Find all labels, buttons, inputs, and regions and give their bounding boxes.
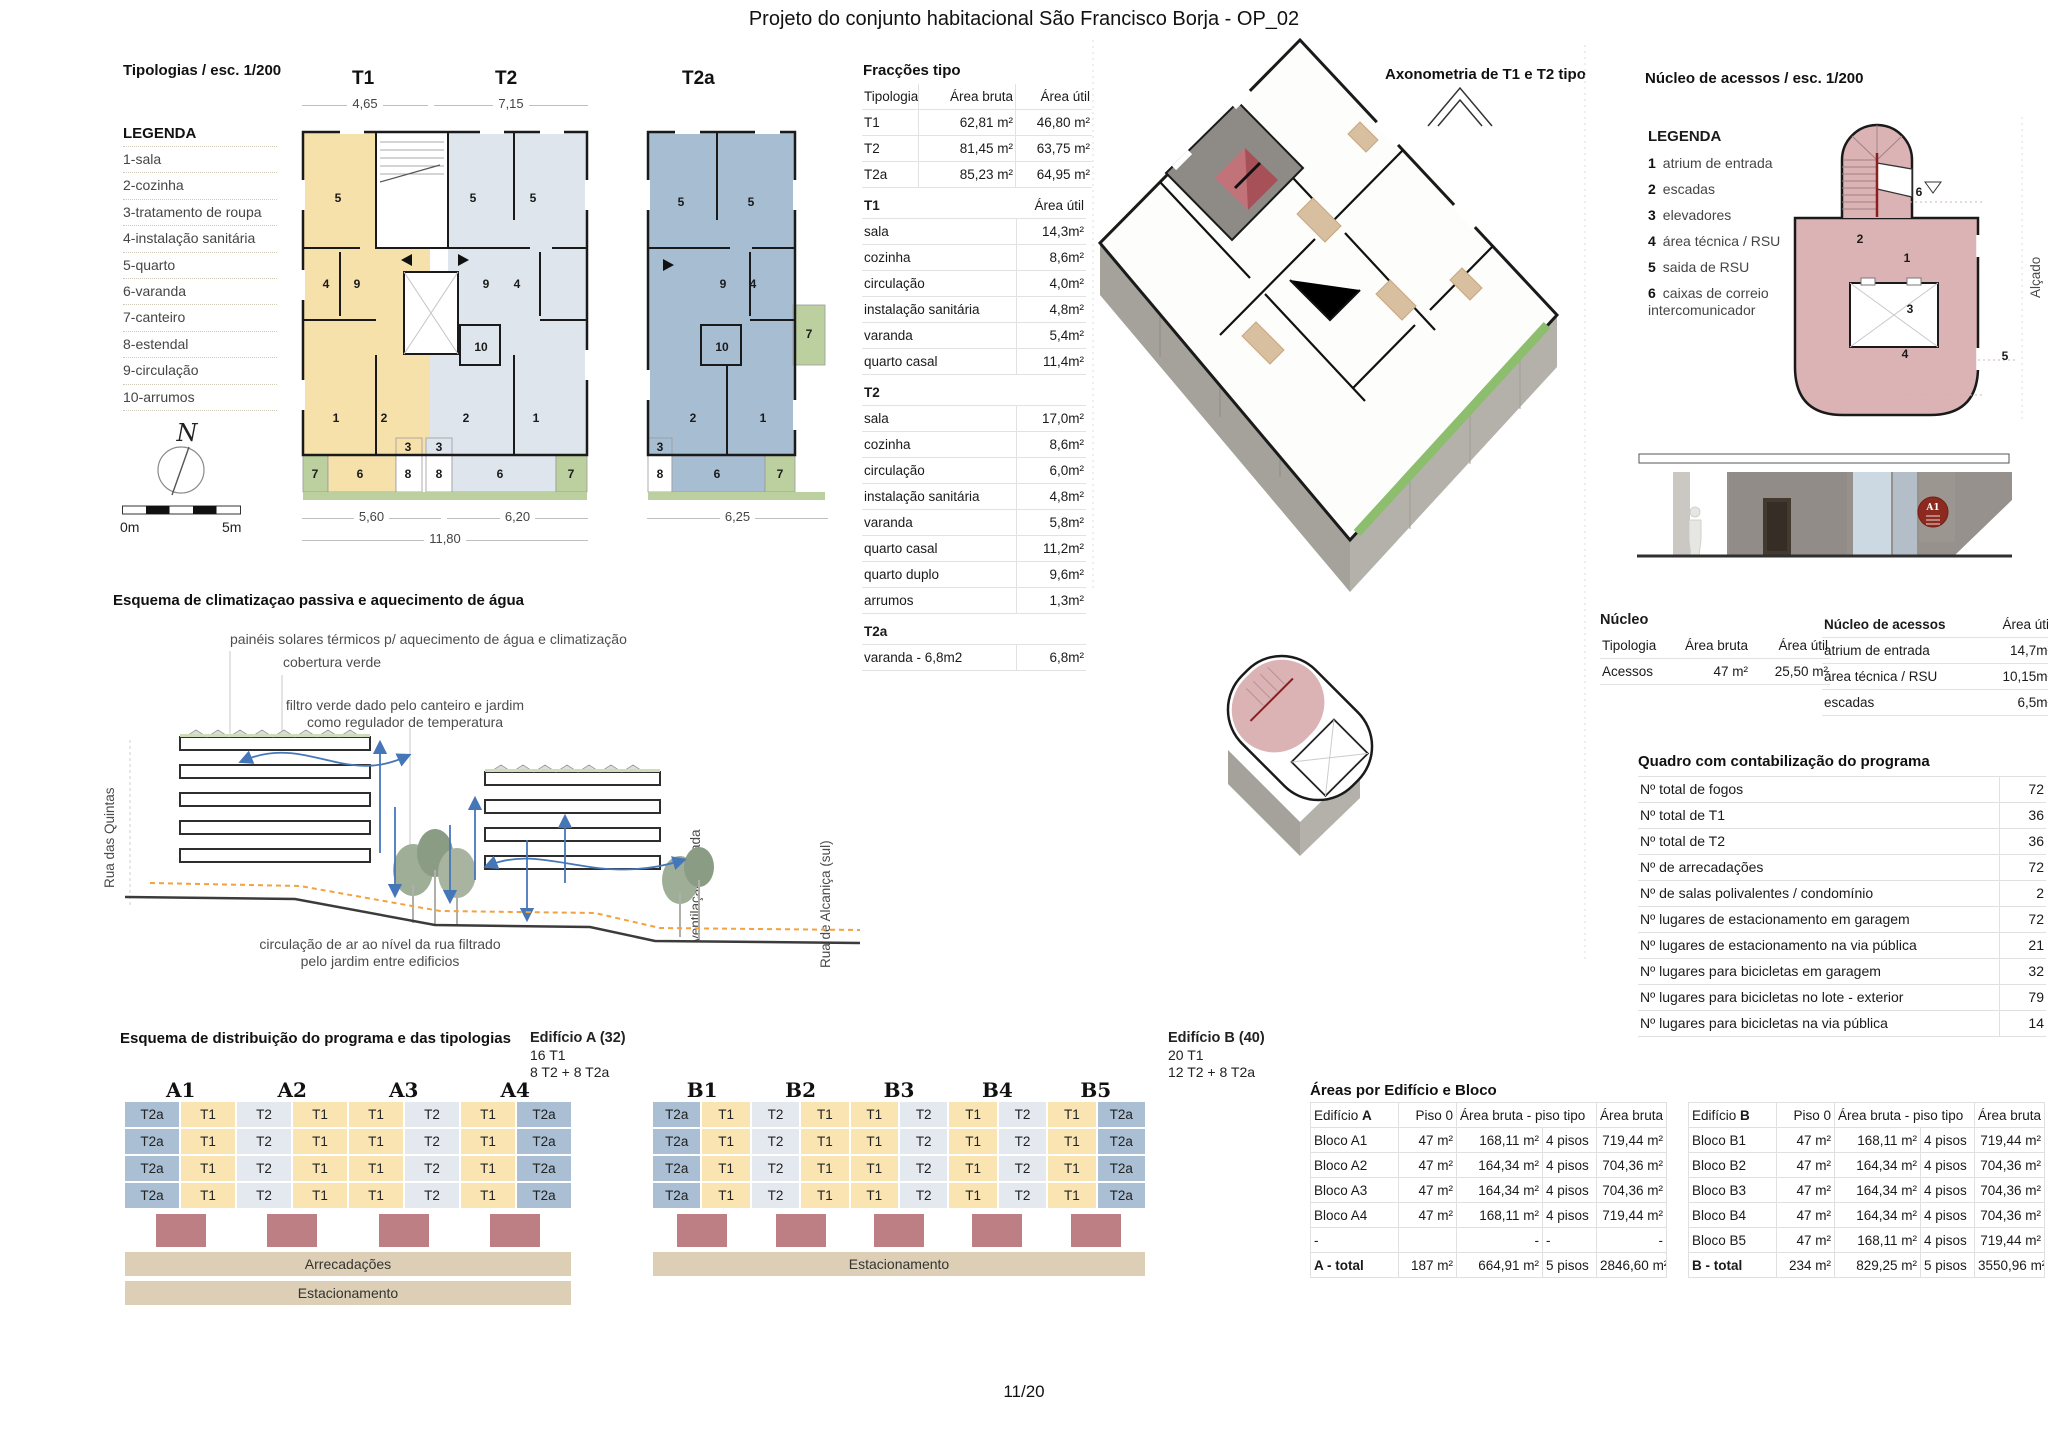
cell: instalação sanitária	[862, 297, 1016, 323]
cell: 2846,60 m²	[1597, 1253, 1667, 1278]
unit-cell: T1	[461, 1183, 515, 1208]
quadro-value: 2	[1999, 881, 2046, 906]
cell: 704,36 m²	[1597, 1153, 1667, 1178]
cell: 47 m²	[1399, 1153, 1457, 1178]
quadro-row: Nº total de T136	[1638, 803, 2046, 829]
unit-cell: T1	[851, 1183, 898, 1208]
quadro-value: 79	[1999, 985, 2046, 1010]
cell: sala	[862, 219, 1016, 245]
unit-cell: T2a	[125, 1129, 179, 1154]
cell: Bloco B3	[1689, 1178, 1777, 1203]
cell: 164,34 m²	[1457, 1178, 1543, 1203]
core-block	[776, 1214, 826, 1247]
quadro-label: Nº lugares de estacionamento na via públ…	[1638, 933, 1999, 958]
building-b-info: Edifício B (40) 20 T1 12 T2 + 8 T2a	[1168, 1030, 1265, 1081]
unit-cell: T2	[237, 1183, 291, 1208]
room-label: 1	[533, 411, 540, 425]
nucleo-table: Núcleo TipologiaÁrea brutaÁrea útilAcess…	[1600, 612, 1820, 685]
quadro-label: Nº lugares para bicicletas em garagem	[1638, 959, 1999, 984]
quadro-row: Nº lugares de estacionamento em garagem7…	[1638, 907, 2046, 933]
unit-cell: T1	[293, 1156, 347, 1181]
quadro-row: Nº lugares para bicicletas no lote - ext…	[1638, 985, 2046, 1011]
cell: 47 m²	[1777, 1178, 1835, 1203]
building-a-name: Edifício A (32)	[530, 1030, 626, 1047]
cell: 5 pisos	[1921, 1253, 1975, 1278]
cell: 4 pisos	[1921, 1203, 1975, 1228]
cell: instalação sanitária	[862, 484, 1016, 510]
col-header: Tipologia	[1600, 633, 1670, 659]
room-label: 5	[748, 195, 755, 209]
room-label: 4	[750, 277, 757, 291]
cell: Bloco B4	[1689, 1203, 1777, 1228]
cell: -	[1597, 1228, 1667, 1253]
cell: Bloco A4	[1311, 1203, 1399, 1228]
unit-cell: T2a	[653, 1129, 700, 1154]
col-header: Área útil	[1978, 612, 2048, 638]
cell: 164,34 m²	[1835, 1203, 1921, 1228]
unit-cell: T2	[405, 1102, 459, 1127]
cell: quarto casal	[862, 349, 1016, 375]
basement-bar: Estacionamento	[125, 1281, 571, 1305]
cell: 47 m²	[1399, 1178, 1457, 1203]
cell: 25,50 m²	[1750, 659, 1830, 685]
nucleo-table-title: Núcleo	[1600, 612, 1820, 633]
core-block	[874, 1214, 924, 1247]
quadro-value: 32	[1999, 959, 2046, 984]
room-label: 5	[335, 191, 342, 205]
quadro-row: Nº lugares de estacionamento na via públ…	[1638, 933, 2046, 959]
cell: 4 pisos	[1543, 1128, 1597, 1153]
cell: Bloco B1	[1689, 1128, 1777, 1153]
unit-cell: T1	[801, 1156, 848, 1181]
unit-cell: T1	[949, 1102, 996, 1127]
cell: 704,36 m²	[1597, 1178, 1667, 1203]
block-header: A4	[460, 1078, 572, 1102]
quadro-value: 72	[1999, 777, 2046, 802]
distribution-title: Esquema de distribuição do programa e da…	[120, 1030, 511, 1047]
col-header: Edifício A	[1311, 1103, 1399, 1128]
legend-item: 3-tratamento de roupa	[123, 200, 277, 226]
unit-cell: T1	[461, 1156, 515, 1181]
plan-title-t2a: T2a	[682, 68, 715, 90]
unit-cell: T2	[999, 1102, 1046, 1127]
room-label: 8	[405, 467, 412, 481]
room-label: 2	[381, 411, 388, 425]
cell: circulação	[862, 271, 1016, 297]
room-label: 4	[323, 277, 330, 291]
room-label: 2	[690, 411, 697, 425]
unit-cell: T1	[349, 1156, 403, 1181]
unit-cell: T1	[702, 1156, 749, 1181]
room-label: 5	[678, 195, 685, 209]
cell: área técnica / RSU	[1822, 664, 1978, 690]
col-header: Piso 0	[1399, 1103, 1457, 1128]
cell: 47 m²	[1777, 1128, 1835, 1153]
unit-cell: T1	[801, 1129, 848, 1154]
grid-block-headers: A1A2A3A4	[125, 1078, 571, 1100]
unit-cell: T1	[702, 1102, 749, 1127]
core-block-slot	[348, 1214, 460, 1247]
areas-table: Edifício BPiso 0Área bruta - piso tipoÁr…	[1688, 1102, 2045, 1278]
quadro-label: Nº total de fogos	[1638, 777, 1999, 802]
unit-cell: T2a	[517, 1129, 571, 1154]
unit-cell: T2	[752, 1102, 799, 1127]
legend-item: 1-sala	[123, 147, 277, 173]
unit-cell: T1	[293, 1129, 347, 1154]
room-label: 1	[333, 411, 340, 425]
col-header: Núcleo de acessos	[1822, 612, 1978, 638]
dim-t1-top: 4,65	[347, 96, 382, 111]
cell: 164,34 m²	[1835, 1153, 1921, 1178]
fraccoes-tables: TipologiaÁrea brutaÁrea útilT162,81 m²46…	[862, 84, 1078, 676]
cell: circulação	[862, 458, 1016, 484]
room-label: 6	[497, 467, 504, 481]
room-label: 8	[657, 467, 664, 481]
quadro-label: Nº lugares para bicicletas na via públic…	[1638, 1011, 1999, 1036]
compass-icon: N	[140, 415, 232, 517]
room-label: 4	[1902, 347, 1909, 361]
fraccoes-main-table: TipologiaÁrea brutaÁrea útilT162,81 m²46…	[862, 84, 1092, 188]
block-header: A2	[237, 1078, 349, 1102]
unit-cell: T1	[949, 1183, 996, 1208]
cell: 704,36 m²	[1975, 1203, 2045, 1228]
cell: atrium de entrada	[1822, 638, 1978, 664]
unit-cell: T2	[999, 1129, 1046, 1154]
grid-core-blocks	[653, 1214, 1145, 1247]
cell: 719,44 m²	[1975, 1128, 2045, 1153]
cell: 719,44 m²	[1597, 1128, 1667, 1153]
grid-cells: T2aT1T2T1T1T2T1T2T1T2aT2aT1T2T1T1T2T1T2T…	[653, 1102, 1145, 1208]
unit-cell: T2	[752, 1156, 799, 1181]
cell: 4 pisos	[1921, 1153, 1975, 1178]
cell: 719,44 m²	[1975, 1228, 2045, 1253]
block-header: B2	[751, 1078, 849, 1102]
room-label: 3	[436, 440, 443, 454]
cell: varanda - 6,8m2	[862, 645, 1016, 671]
col-header: Área bruta	[1670, 633, 1750, 659]
quadro-value: 36	[1999, 829, 2046, 854]
room-label: 3	[405, 440, 412, 454]
legend-item: 6-varanda	[123, 279, 277, 305]
unit-cell: T2	[752, 1183, 799, 1208]
cell: 4 pisos	[1921, 1178, 1975, 1203]
cell: 664,91 m²	[1457, 1253, 1543, 1278]
climate-title: Esquema de climatizaçao passiva e aqueci…	[113, 592, 524, 609]
areas-title: Áreas por Edifício e Bloco	[1310, 1082, 1497, 1099]
building-b-name: Edifício B (40)	[1168, 1030, 1265, 1047]
room-label: 2	[463, 411, 470, 425]
unit-cell: T2	[900, 1129, 947, 1154]
typologies-legend-items: 1-sala2-cozinha3-tratamento de roupa4-in…	[123, 147, 277, 411]
quadro-row: Nº de salas polivalentes / condomínio2	[1638, 881, 2046, 907]
axonometric-drawing	[1060, 30, 1642, 980]
core-block	[379, 1214, 429, 1247]
cell: arrumos	[862, 588, 1016, 614]
typologies-legend: LEGENDA 1-sala2-cozinha3-tratamento de r…	[123, 122, 277, 411]
legend-number: 5	[1648, 259, 1656, 275]
cell: 4 pisos	[1921, 1128, 1975, 1153]
scale-five: 5m	[222, 519, 241, 535]
unit-cell: T1	[851, 1156, 898, 1181]
grid-core-blocks	[125, 1214, 571, 1247]
quadro-label: Nº total de T1	[1638, 803, 1999, 828]
cell: 187 m²	[1399, 1253, 1457, 1278]
plan-title-t2: T2	[495, 68, 517, 90]
cell: 47 m²	[1777, 1228, 1835, 1253]
cell: Bloco B5	[1689, 1228, 1777, 1253]
unit-cell: T1	[349, 1129, 403, 1154]
cell: 10,15m²	[1978, 664, 2048, 690]
unit-cell: T2a	[517, 1183, 571, 1208]
cell: varanda	[862, 510, 1016, 536]
col-header: Área bruta total	[1597, 1103, 1667, 1128]
cell: cozinha	[862, 432, 1016, 458]
unit-cell: T1	[181, 1129, 235, 1154]
page-title: Projeto do conjunto habitacional São Fra…	[0, 8, 2048, 31]
floorplan-t1-t2: 549123768559410213867	[300, 120, 590, 502]
block-header: A1	[125, 1078, 237, 1102]
quadro-label: Nº total de T2	[1638, 829, 1999, 854]
room-label: 7	[312, 467, 319, 481]
cell: 829,25 m²	[1835, 1253, 1921, 1278]
typologies-heading: Tipologias / esc. 1/200	[123, 62, 281, 79]
elevation-drawing: A1	[1637, 450, 2012, 575]
unit-cell: T2a	[517, 1102, 571, 1127]
basement-bar: Arrecadações	[125, 1252, 571, 1276]
dim-t1-bottom: 5,60	[354, 509, 389, 524]
unit-cell: T1	[702, 1183, 749, 1208]
fraccoes-title: Fracções tipo	[863, 62, 961, 79]
unit-cell: T2	[405, 1183, 459, 1208]
core-block	[267, 1214, 317, 1247]
core-block	[972, 1214, 1022, 1247]
cell: 704,36 m²	[1975, 1153, 2045, 1178]
unit-cell: T2	[237, 1129, 291, 1154]
block-header: B3	[850, 1078, 948, 1102]
distribution-grid-a: A1A2A3A4T2aT1T2T1T1T2T1T2aT2aT1T2T1T1T2T…	[125, 1078, 571, 1305]
unit-cell: T2	[237, 1156, 291, 1181]
cell: Acessos	[1600, 659, 1670, 685]
unit-cell: T1	[851, 1129, 898, 1154]
unit-cell: T1	[1048, 1102, 1095, 1127]
scale-bar	[122, 505, 242, 517]
core-block-slot	[751, 1214, 849, 1247]
legend-item: 10-arrumos	[123, 385, 277, 411]
quadro-label: Nº de salas polivalentes / condomínio	[1638, 881, 1999, 906]
cell: escadas	[1822, 690, 1978, 716]
unit-cell: T1	[949, 1129, 996, 1154]
cell: 5 pisos	[1543, 1253, 1597, 1278]
unit-cell: T2	[999, 1156, 1046, 1181]
room-label: 9	[720, 277, 727, 291]
col-header: Edifício B	[1689, 1103, 1777, 1128]
cell: 704,36 m²	[1975, 1178, 2045, 1203]
fraccoes-section-t1: T1Área útilsala14,3m²cozinha8,6m²circula…	[862, 193, 1086, 375]
col-header: Tipologia	[862, 84, 919, 110]
unit-cell: T1	[181, 1102, 235, 1127]
legend-title: LEGENDA	[123, 122, 277, 147]
unit-cell: T1	[801, 1183, 848, 1208]
quadro-row: Nº total de fogos72	[1638, 777, 2046, 803]
unit-cell: T2	[999, 1183, 1046, 1208]
unit-cell: T1	[1048, 1183, 1095, 1208]
unit-cell: T1	[702, 1129, 749, 1154]
building-b-line3: 12 T2 + 8 T2a	[1168, 1064, 1265, 1081]
quadro-label: Nº lugares de estacionamento em garagem	[1638, 907, 1999, 932]
cell: quarto duplo	[862, 562, 1016, 588]
cell: T2a	[862, 162, 919, 188]
core-block	[490, 1214, 540, 1247]
cell: 81,45 m²	[919, 136, 1016, 162]
cell: quarto casal	[862, 536, 1016, 562]
core-block	[1071, 1214, 1121, 1247]
cell: 47 m²	[1399, 1203, 1457, 1228]
section-name: T1	[862, 193, 1016, 219]
page-number: 11/20	[0, 1382, 2048, 1402]
core-block-slot	[948, 1214, 1046, 1247]
room-label: 6	[1916, 185, 1923, 199]
core-block-slot	[460, 1214, 572, 1247]
unit-cell: T1	[1048, 1156, 1095, 1181]
cell	[1399, 1228, 1457, 1253]
quadro-value: 21	[1999, 933, 2046, 958]
cell: 85,23 m²	[919, 162, 1016, 188]
compass-n: N	[176, 419, 199, 447]
cell: Bloco A3	[1311, 1178, 1399, 1203]
room-label: 10	[715, 340, 729, 354]
cell: 168,11 m²	[1457, 1128, 1543, 1153]
scale-zero: 0m	[120, 519, 139, 535]
unit-cell: T2	[405, 1156, 459, 1181]
col-header: Piso 0	[1777, 1103, 1835, 1128]
basement-bar: Estacionamento	[653, 1252, 1145, 1276]
legend-item: 8-estendal	[123, 332, 277, 358]
col-header: Área bruta total	[1975, 1103, 2045, 1128]
block-header: B5	[1047, 1078, 1145, 1102]
areas-table-b: Edifício BPiso 0Área bruta - piso tipoÁr…	[1688, 1102, 2045, 1278]
room-label: 1	[760, 411, 767, 425]
room-label: 5	[530, 191, 537, 205]
cell: 47 m²	[1399, 1128, 1457, 1153]
fraccoes-section-t2a: T2avaranda - 6,8m26,8m²	[862, 619, 1086, 671]
cell: A - total	[1311, 1253, 1399, 1278]
cell: T1	[862, 110, 919, 136]
unit-cell: T1	[461, 1129, 515, 1154]
unit-cell: T2	[752, 1129, 799, 1154]
core-block-slot	[125, 1214, 237, 1247]
col-header: Área útil	[1750, 633, 1830, 659]
quadro-row: Nº de arrecadações72	[1638, 855, 2046, 881]
quadro-value: 36	[1999, 803, 2046, 828]
unit-cell: T2	[237, 1102, 291, 1127]
climate-diagram	[95, 625, 860, 985]
block-header: A3	[348, 1078, 460, 1102]
cell: 6,5m²	[1978, 690, 2048, 716]
fraccoes-section-t2: T2sala17,0m²cozinha8,6m²circulação6,0m²i…	[862, 380, 1086, 614]
alcado-label: Alçado	[2028, 257, 2043, 298]
room-label: 7	[568, 467, 575, 481]
quadro-label: Nº de arrecadações	[1638, 855, 1999, 880]
quadro-value: 72	[1999, 907, 2046, 932]
room-label: 5	[2002, 349, 2009, 363]
unit-cell: T2a	[125, 1183, 179, 1208]
room-label: 7	[806, 327, 813, 341]
section-name: T2	[862, 380, 1016, 406]
unit-cell: T1	[949, 1156, 996, 1181]
unit-cell: T1	[801, 1102, 848, 1127]
quadro-label: Nº lugares para bicicletas no lote - ext…	[1638, 985, 1999, 1010]
core-block-slot	[1047, 1214, 1145, 1247]
cell: varanda	[862, 323, 1016, 349]
cell: 47 m²	[1777, 1153, 1835, 1178]
legend-item: 7-canteiro	[123, 305, 277, 331]
legend-number: 3	[1648, 207, 1656, 223]
unit-cell: T2a	[1098, 1129, 1145, 1154]
room-label: 6	[714, 467, 721, 481]
core-block-slot	[850, 1214, 948, 1247]
room-label: 4	[514, 277, 521, 291]
cell: 62,81 m²	[919, 110, 1016, 136]
unit-cell: T2a	[653, 1102, 700, 1127]
room-label: 3	[1907, 302, 1914, 316]
cell: 3550,96 m²	[1975, 1253, 2045, 1278]
room-label: 5	[470, 191, 477, 205]
unit-cell: T2a	[653, 1156, 700, 1181]
cell: 164,34 m²	[1835, 1178, 1921, 1203]
core-plan-drawing: 123456	[1755, 105, 2048, 435]
legend-item: 9-circulação	[123, 358, 277, 384]
dim-t2-bottom: 6,20	[500, 509, 535, 524]
unit-cell: T1	[349, 1102, 403, 1127]
cell: 4 pisos	[1543, 1178, 1597, 1203]
cell: 4 pisos	[1543, 1203, 1597, 1228]
quadro-row: Nº total de T236	[1638, 829, 2046, 855]
nucleo-heading: Núcleo de acessos / esc. 1/200	[1645, 70, 1863, 87]
room-label: 8	[436, 467, 443, 481]
unit-cell: T1	[461, 1102, 515, 1127]
cell: 168,11 m²	[1835, 1228, 1921, 1253]
axon-core	[1208, 636, 1392, 820]
unit-cell: T1	[293, 1183, 347, 1208]
room-label: 7	[777, 467, 784, 481]
block-header: B4	[948, 1078, 1046, 1102]
legend-item: 2-cozinha	[123, 173, 277, 199]
col-header: Área bruta - piso tipo	[1835, 1103, 1975, 1128]
unit-cell: T2a	[517, 1156, 571, 1181]
legend-item: 5-quarto	[123, 253, 277, 279]
unit-cell: T2a	[653, 1183, 700, 1208]
room-label: 1	[1904, 251, 1911, 265]
unit-cell: T1	[293, 1102, 347, 1127]
quadro-title: Quadro com contabilização do programa	[1638, 753, 1930, 770]
unit-cell: T2	[405, 1129, 459, 1154]
acessos-table: Núcleo de acessosÁrea útilatrium de entr…	[1822, 612, 2048, 716]
cell: 168,11 m²	[1457, 1203, 1543, 1228]
cell: 47 m²	[1670, 659, 1750, 685]
core-block	[156, 1214, 206, 1247]
grid-cells: T2aT1T2T1T1T2T1T2aT2aT1T2T1T1T2T1T2aT2aT…	[125, 1102, 571, 1208]
cell: 719,44 m²	[1597, 1203, 1667, 1228]
unit-cell: T2a	[125, 1156, 179, 1181]
core-block	[677, 1214, 727, 1247]
quadro-row: Nº lugares para bicicletas na via públic…	[1638, 1011, 2046, 1037]
cell: 164,34 m²	[1457, 1153, 1543, 1178]
quadro-value: 14	[1999, 1011, 2046, 1036]
room-label: 6	[357, 467, 364, 481]
legend-item: 4-instalação sanitária	[123, 226, 277, 252]
room-label: 2	[1857, 232, 1864, 246]
unit-cell: T1	[851, 1102, 898, 1127]
